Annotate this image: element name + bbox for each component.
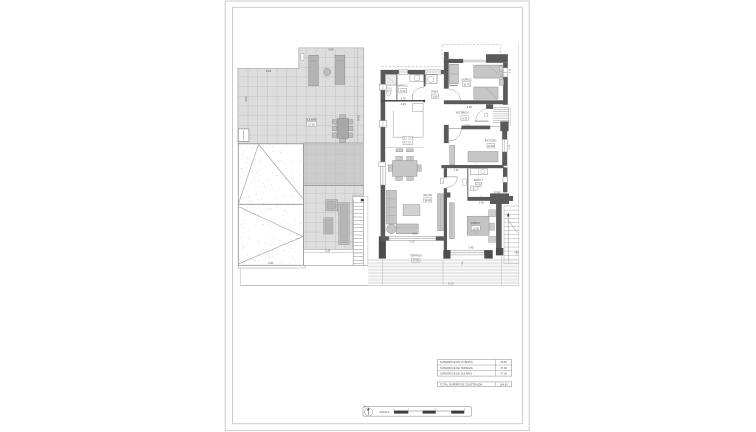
svg-text:4.05: 4.05: [476, 184, 481, 187]
svg-text:4.05: 4.05: [244, 96, 248, 102]
svg-text:17.00: 17.00: [500, 366, 507, 370]
svg-text:ESCALA: ESCALA: [380, 411, 390, 414]
svg-text:3.79: 3.79: [400, 96, 406, 100]
svg-text:90.65: 90.65: [500, 360, 507, 364]
svg-text:4.10: 4.10: [412, 232, 417, 235]
svg-text:57.00: 57.00: [500, 371, 507, 375]
svg-text:1.41: 1.41: [454, 168, 460, 172]
svg-text:4.30: 4.30: [328, 47, 334, 51]
svg-text:2.85: 2.85: [467, 105, 473, 109]
svg-text:6.06: 6.06: [266, 69, 272, 73]
svg-text:SALON: SALON: [423, 193, 432, 197]
svg-text:DORM.2: DORM.2: [461, 77, 472, 81]
svg-text:DORM.1: DORM.1: [470, 221, 481, 225]
svg-text:VESTIBULO: VESTIBULO: [456, 112, 470, 115]
svg-text:2.36: 2.36: [479, 201, 484, 204]
svg-text:SUPERFICIE DE TERRAZA: SUPERFICIE DE TERRAZA: [440, 366, 473, 370]
svg-text:SUPERFICIE DE SOLARIO: SUPERFICIE DE SOLARIO: [440, 371, 472, 375]
svg-text:PASO: PASO: [431, 90, 438, 94]
svg-text:9.40: 9.40: [356, 115, 360, 121]
svg-text:30.30: 30.30: [424, 198, 431, 202]
svg-text:SUPERFICIE DE VIVIENDA: SUPERFICIE DE VIVIENDA: [440, 360, 473, 364]
svg-text:164.65: 164.65: [500, 382, 508, 386]
svg-text:10.70: 10.70: [463, 82, 470, 86]
svg-text:5.28: 5.28: [325, 249, 331, 253]
svg-text:5.45: 5.45: [468, 246, 474, 250]
svg-text:4.70: 4.70: [462, 116, 468, 120]
svg-text:4.90: 4.90: [473, 161, 479, 165]
svg-text:TOTAL SUPERFICIE CONSTRUIDA: TOTAL SUPERFICIE CONSTRUIDA: [440, 382, 482, 386]
svg-text:57.00: 57.00: [308, 122, 315, 126]
svg-text:SOLARIO: SOLARIO: [306, 118, 318, 122]
svg-text:3.75: 3.75: [409, 240, 415, 244]
svg-text:3.80: 3.80: [432, 95, 438, 99]
svg-text:12.85: 12.85: [473, 226, 480, 230]
svg-text:2.46: 2.46: [401, 102, 407, 106]
svg-text:6.20: 6.20: [448, 281, 454, 285]
svg-text:6.10: 6.10: [400, 89, 406, 93]
svg-text:TERRAZA: TERRAZA: [410, 255, 422, 258]
svg-text:BAÑO 1: BAÑO 1: [474, 179, 484, 182]
svg-text:ESTUDIO: ESTUDIO: [485, 139, 497, 143]
svg-text:10.00: 10.00: [488, 144, 495, 148]
svg-text:N: N: [364, 405, 366, 408]
svg-text:4.96: 4.96: [268, 261, 274, 265]
